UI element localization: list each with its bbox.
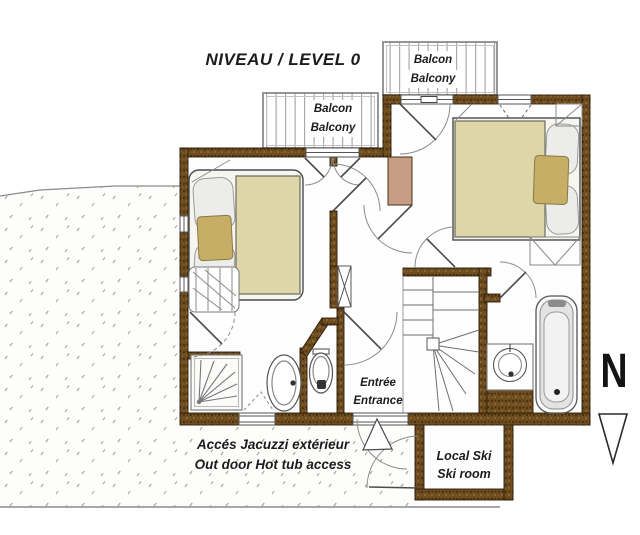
chimney-block xyxy=(388,157,412,205)
entrance-label-fr: Entrée xyxy=(336,374,420,392)
balcony-right-label-en: Balcony xyxy=(408,70,459,89)
bed-right xyxy=(453,118,580,240)
entrance-label-en: Entrance xyxy=(336,392,420,410)
cot xyxy=(189,267,239,312)
ski-room-label-fr: Local Ski xyxy=(414,447,514,465)
floor-plan: NIVEAU / LEVEL 0 Balcon Balcony Balcon B… xyxy=(0,0,640,535)
entrance-label: Entrée Entrance xyxy=(336,374,420,410)
jacuzzi-access-label-en: Out door Hot tub access xyxy=(158,455,388,475)
balcony-left-label-fr: Balcon xyxy=(311,100,355,119)
jacuzzi-access-label: Accés Jacuzzi extérieur Out door Hot tub… xyxy=(158,435,388,475)
jacuzzi-access-label-fr: Accés Jacuzzi extérieur xyxy=(158,435,388,455)
washbasin-left xyxy=(267,355,301,411)
page-title: NIVEAU / LEVEL 0 xyxy=(198,50,368,70)
balcony-right-label: Balcon Balcony xyxy=(383,51,483,88)
balcony-right-label-fr: Balcon xyxy=(411,51,455,70)
shower xyxy=(191,355,242,410)
washbasin-right xyxy=(487,344,533,390)
duct-shaft xyxy=(338,266,351,307)
north-arrow-icon xyxy=(599,414,627,463)
balcony-left-label: Balcon Balcony xyxy=(283,100,383,137)
compass-north-label: N xyxy=(598,344,629,399)
bathtub xyxy=(536,296,577,413)
ski-room-label-en: Ski room xyxy=(414,465,514,483)
balcony-left-label-en: Balcony xyxy=(308,119,359,138)
ski-room-label: Local Ski Ski room xyxy=(414,447,514,483)
